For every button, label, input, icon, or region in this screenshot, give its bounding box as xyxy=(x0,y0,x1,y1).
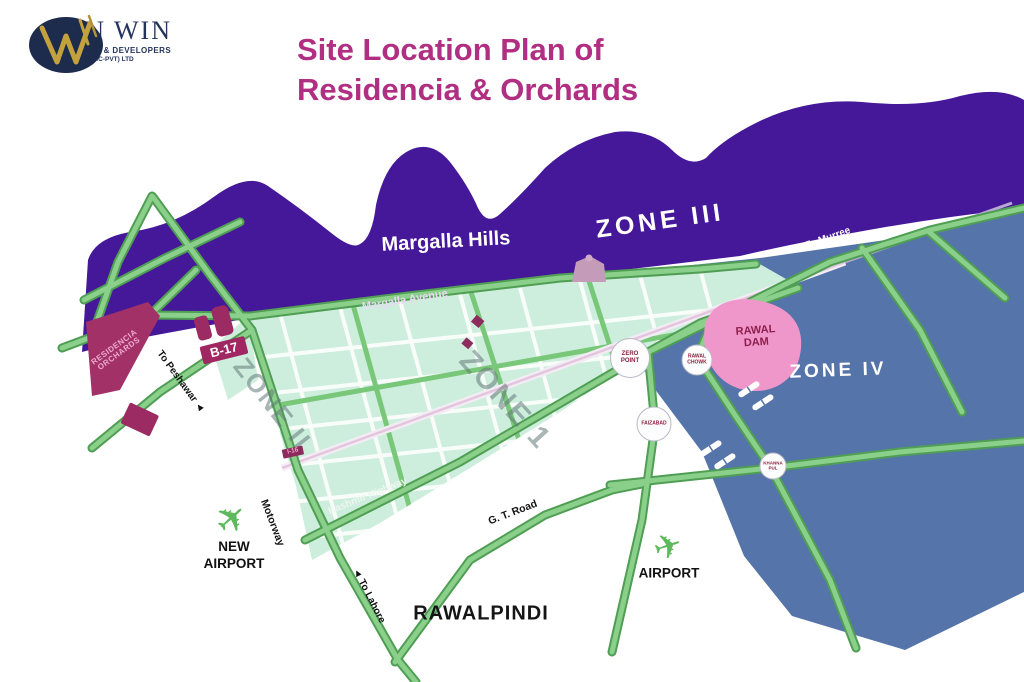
khanna-interchange: KHANNA PUL xyxy=(760,453,787,480)
zero-point-line1: ZERO xyxy=(622,351,639,358)
page-title: Site Location Plan of Residencia & Orcha… xyxy=(297,30,638,110)
title-line2: Residencia & Orchards xyxy=(297,70,638,110)
winwin-logo-mark xyxy=(26,14,110,74)
new-airport-line1: NEW xyxy=(204,539,265,556)
new-airport-line2: AIRPORT xyxy=(204,556,265,573)
rawal-dam-label: RAWAL DAM xyxy=(735,324,776,350)
airport-label: AIRPORT xyxy=(639,566,700,583)
site-location-plan: WIN WIN MARKETING & DEVELOPERS (SMC-PVT)… xyxy=(0,0,1024,682)
zone4-label: ZONE IV xyxy=(789,359,887,382)
faizabad-interchange: FAIZABAD xyxy=(637,407,672,442)
khanna-line2: PUL xyxy=(769,466,778,471)
rawal-chowk-interchange: RAWAL CHOWK xyxy=(682,345,713,376)
zero-point-interchange: ZERO POINT xyxy=(610,338,650,378)
title-line1: Site Location Plan of xyxy=(297,30,638,70)
new-airport-label: NEW AIRPORT xyxy=(204,539,265,573)
rawalpindi-label: RAWALPINDI xyxy=(413,604,549,625)
rawal-chowk-line2: CHOWK xyxy=(687,360,706,366)
zero-point-line2: POINT xyxy=(621,358,639,365)
winwin-logo: WIN WIN MARKETING & DEVELOPERS (SMC-PVT)… xyxy=(26,14,194,63)
